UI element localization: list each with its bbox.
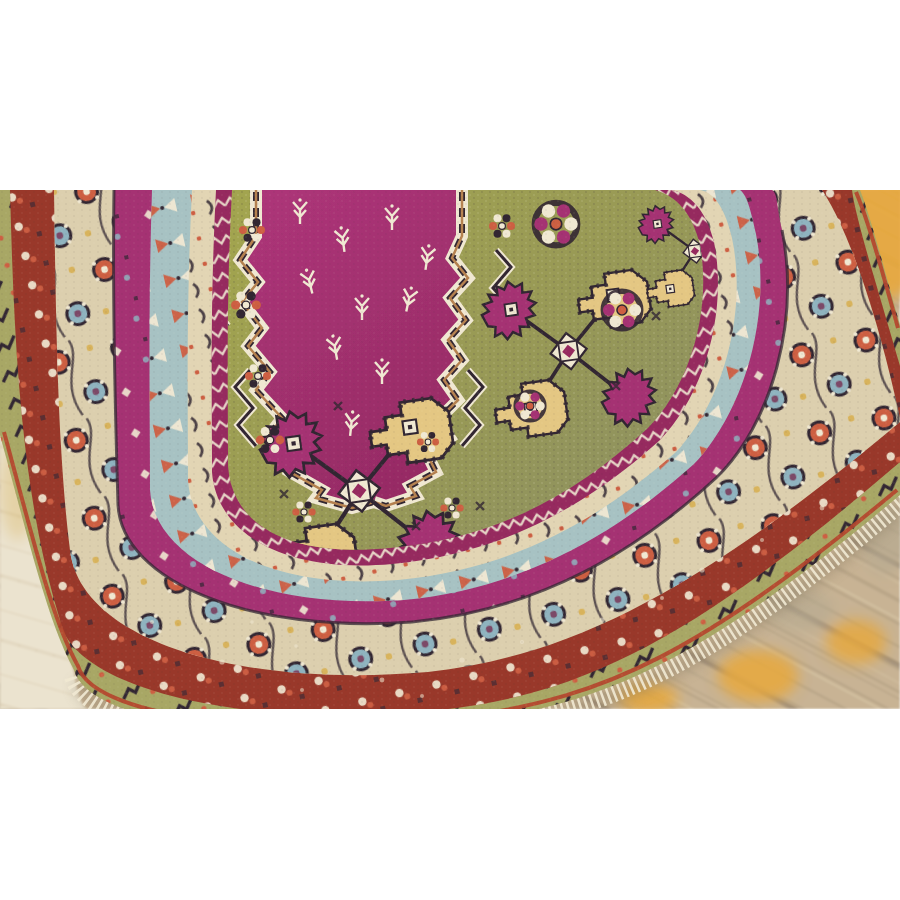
page-frame — [0, 0, 900, 900]
rug-photo-svg — [0, 190, 900, 709]
rug-photograph — [0, 190, 900, 709]
